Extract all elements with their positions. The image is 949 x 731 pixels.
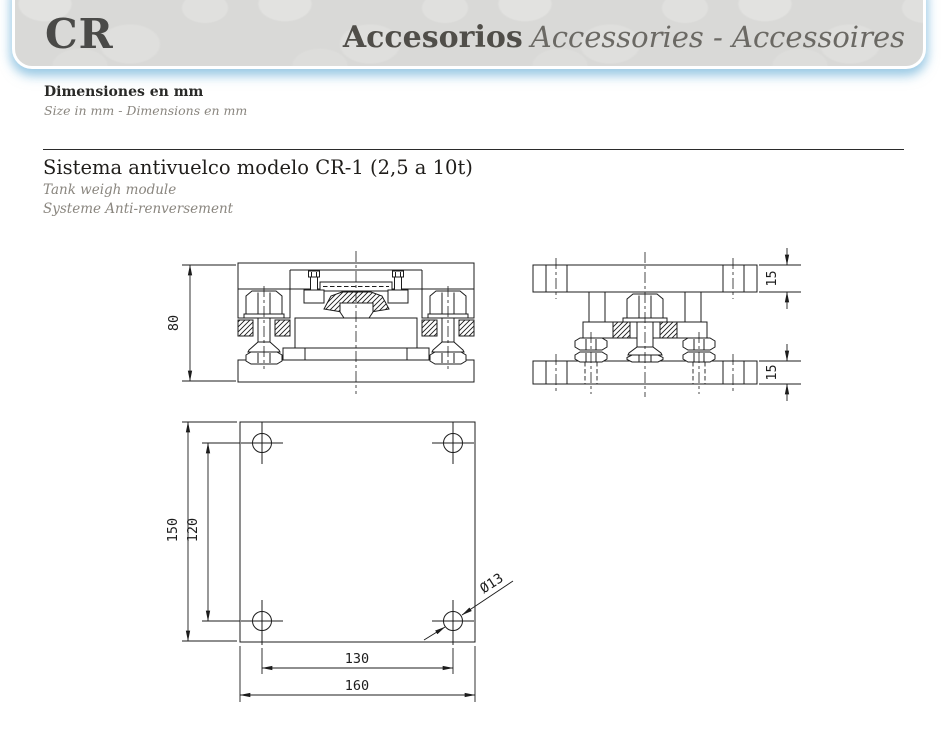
dim-top-plate: 15 xyxy=(759,248,801,309)
technical-drawing: 80 xyxy=(0,0,949,731)
dim-front-height: 80 xyxy=(166,265,236,381)
dim-label-130: 130 xyxy=(345,651,369,667)
dim-bottom-plate: 15 xyxy=(759,344,801,401)
dim-plate-height: 150 xyxy=(165,422,237,641)
dim-label-120: 120 xyxy=(185,518,201,542)
dim-label-dia13: Ø13 xyxy=(477,570,506,597)
catalog-page: CR AccesoriosAccessories - Accessoires D… xyxy=(0,0,949,731)
plan-view: 150 120 130 160 xyxy=(165,422,513,702)
dim-label-15-top: 15 xyxy=(764,270,780,286)
side-view: 15 15 xyxy=(533,248,801,401)
dim-label-15-bottom: 15 xyxy=(764,364,780,380)
dim-label-150: 150 xyxy=(165,518,181,542)
dim-label-80: 80 xyxy=(166,315,182,331)
front-view: 80 xyxy=(166,251,474,394)
dim-label-160: 160 xyxy=(345,678,369,694)
dim-hole-pitch-vertical: 120 xyxy=(185,443,240,621)
dim-hole-pitch-horizontal: 130 xyxy=(262,648,453,674)
